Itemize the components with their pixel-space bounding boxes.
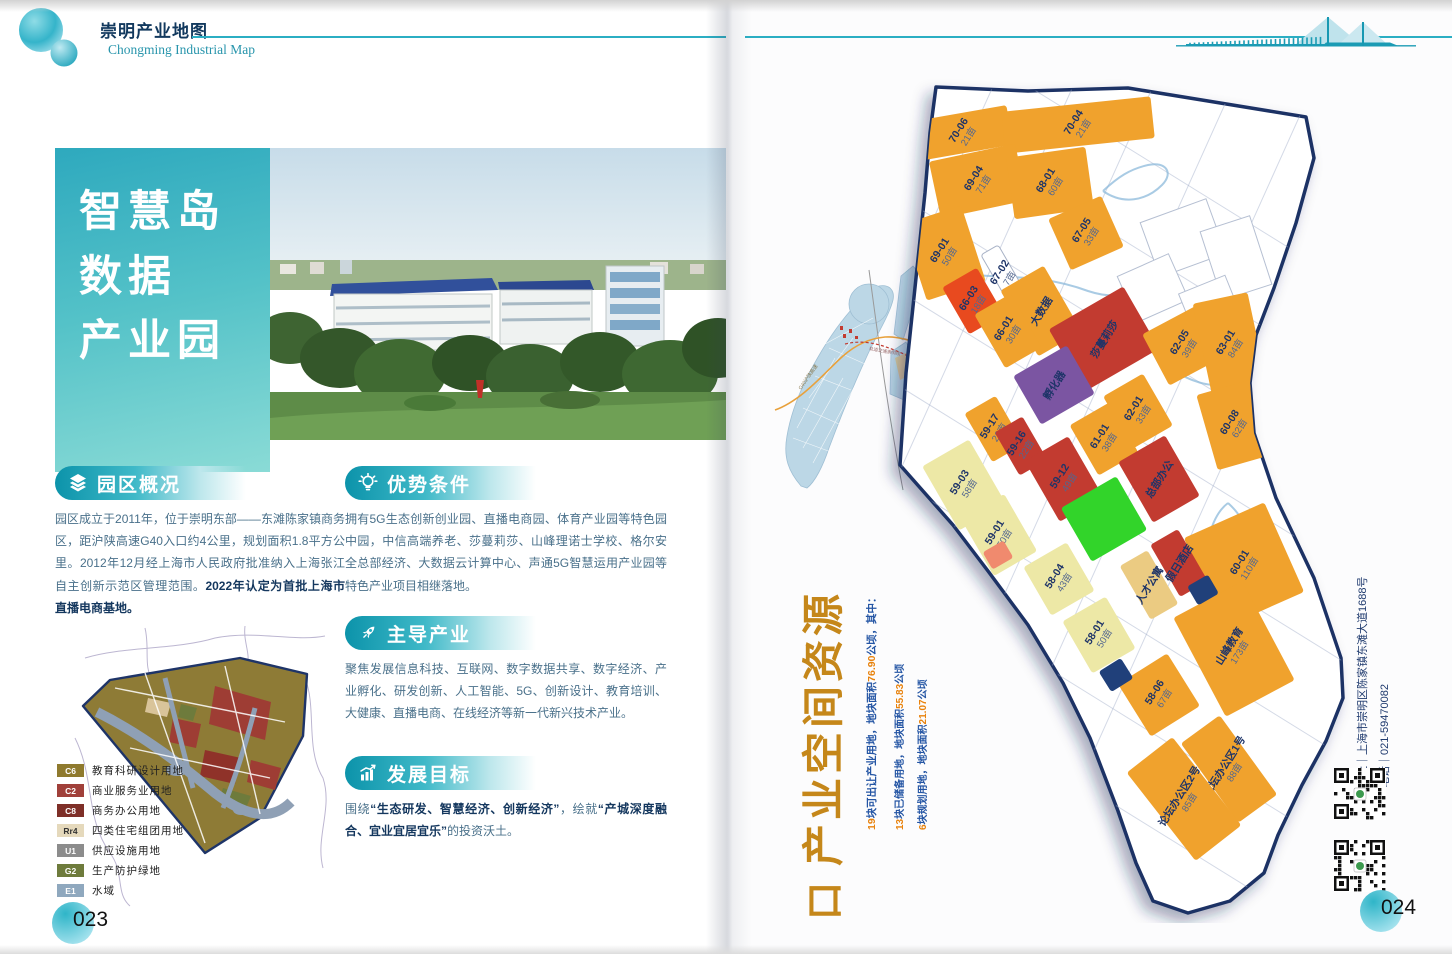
section-header-advantage: 优势条件 [345,466,536,500]
section-header-industry: 主导产业 [345,616,536,650]
qr-code-1 [1334,768,1386,820]
industrial-parcel-map: 70-0621亩70-0421亩69-0471亩68-0160亩67-0533亩… [878,73,1353,923]
right-page-title: 口产业空间资源 [790,590,866,920]
legend-item: C2商业服务业用地 [57,783,184,798]
body-text: 围绕 [345,802,370,816]
hero-title-line: 智慧岛 [55,180,270,245]
section-paragraph-goal: 围绕“生态研发、智慧经济、创新经济”，绘就“产城深度融合、宜业宜居宜乐”的投资沃… [345,798,667,842]
address-line: 地址｜上海市崇明区陈家镇东滩大道1688号 [1352,576,1374,788]
right-page: G40沪陕高速 轨道交通崇明线 [728,0,1452,954]
brand-title: 崇明产业地图 [100,17,208,42]
legend-label: 供应设施用地 [92,843,161,858]
body-text: 块规划用地，地块面积 [918,724,929,824]
phone-line: 电话｜021-59470082 [1374,576,1396,788]
legend-color-chip: U1 [57,844,84,857]
stat-line-1: 19块可出让产业用地，地块面积76.90公顷，其中： [864,600,890,830]
emphasis-text: 21.07 [918,699,929,724]
page-number-left: 023 [73,908,108,932]
body-text: 块已储备用地，地块面积 [895,709,906,819]
rocket-icon [358,623,378,643]
section-paragraph-industry: 聚焦发展信息科技、互联网、数字数据共享、数字经济、产业孵化、研发创新、人工智能、… [345,658,667,725]
emphasis-text: 13 [895,819,906,830]
contact-block: 地址｜上海市崇明区陈家镇东滩大道1688号 电话｜021-59470082 [1352,576,1396,788]
body-text: ，绘就 [559,802,597,816]
planning-map-legend: C6教育科研设计用地C2商业服务业用地C8商务办公用地Rr4四类住宅组团用地U1… [57,763,184,903]
legend-item: U1供应设施用地 [57,843,184,858]
legend-item: C6教育科研设计用地 [57,763,184,778]
hero-title-line: 产业园 [55,309,270,374]
stat-line-2: 13块已储备用地，地块面积55.83公顷 [891,648,915,830]
campus-photo [270,148,726,440]
legend-item: Rr4四类住宅组团用地 [57,823,184,838]
emphasis-text: “生态研发、智慧经济、创新经济” [370,802,559,816]
legend-color-chip: Rr4 [57,824,84,837]
body-text: 拥有5G生态创新创业园、直播电商园、体育产业园等特色园中园，中信高端养老、莎蔓莉… [345,512,667,593]
section-header-goal: 发展目标 [345,756,536,790]
legend-item: G2生产防护绿地 [57,863,184,878]
legend-color-chip: C2 [57,784,84,797]
page-number-right: 024 [1381,896,1416,920]
brand-subtitle: Chongming Industrial Map [108,42,255,58]
title-square-bullet: 口 [805,878,847,920]
legend-color-chip: C8 [57,804,84,817]
bulb-icon [358,473,378,493]
legend-color-chip: E1 [57,884,84,897]
bridge-icon [1176,8,1416,56]
hero-title: 智慧岛数据产业园 [55,180,270,374]
hero-title-block: 智慧岛数据产业园 [55,148,270,472]
title-text: 产业空间资源 [800,590,847,866]
brand-logo-icon [14,5,96,77]
legend-color-chip: G2 [57,864,84,877]
chart-icon [358,763,378,783]
body-text: 的投资沃土。 [447,824,519,838]
body-text: 公顷 [918,679,929,699]
legend-color-chip: C6 [57,764,84,777]
hero-title-line: 数据 [55,245,270,310]
qr-code-2 [1334,840,1386,892]
section-title: 园区概况 [97,470,181,497]
legend-label: 教育科研设计用地 [92,763,184,778]
stat-line-3: 6块规划用地，地块面积21.07公顷 [914,684,938,830]
emphasis-text: 76.90 [866,656,878,682]
legend-label: 商务办公用地 [92,803,161,818]
legend-label: 生产防护绿地 [92,863,161,878]
emphasis-text: 55.83 [895,684,906,709]
body-text: 块可出让产业用地，地块面积 [866,682,878,819]
section-paragraph-advantage: 拥有5G生态创新创业园、直播电商园、体育产业园等特色园中园，中信高端养老、莎蔓莉… [345,508,667,597]
section-title: 发展目标 [387,760,471,787]
layers-icon [68,473,88,493]
emphasis-text: 19 [866,818,878,830]
legend-label: 四类住宅组团用地 [92,823,184,838]
legend-label: 商业服务业用地 [92,783,173,798]
section-title: 优势条件 [387,470,471,497]
body-text: 公顷 [895,664,906,684]
legend-item: E1水域 [57,883,184,898]
left-page: 崇明产业地图 Chongming Industrial Map 智慧岛数据产业园 [0,0,728,954]
header-rule-left [192,36,726,38]
body-text: 聚焦发展信息科技、互联网、数字数据共享、数字经济、产业孵化、研发创新、人工智能、… [345,662,667,720]
body-text: 公顷，其中： [866,593,878,656]
legend-label: 水域 [92,883,115,898]
section-header-overview: 园区概况 [55,466,246,500]
legend-item: C8商务办公用地 [57,803,184,818]
emphasis-text: 6 [918,824,929,830]
section-title: 主导产业 [387,620,471,647]
section-paragraph-overview: 园区成立于2011年，位于崇明东部——东滩陈家镇商务区，距沪陕高速G40入口约4… [55,508,345,619]
